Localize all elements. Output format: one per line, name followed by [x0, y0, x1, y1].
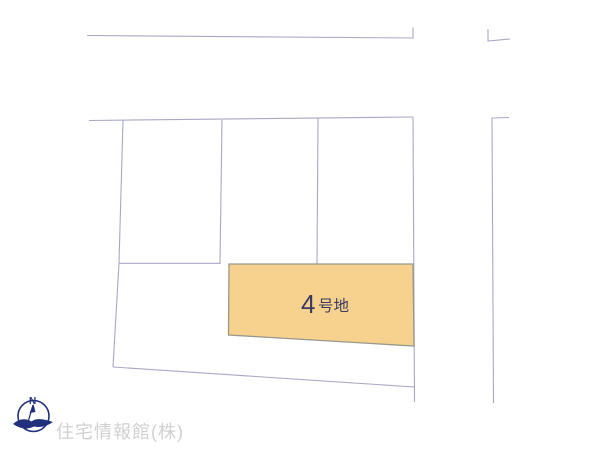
- company-watermark: 住宅情報館(株): [56, 422, 184, 442]
- compass-wing-shape: [13, 419, 53, 428]
- parcel-4-suffix: 号地: [318, 297, 349, 315]
- road-corner-northeast: [488, 29, 510, 41]
- compass-north-icon: N: [13, 396, 53, 432]
- boundary-lines: [87, 28, 510, 404]
- block-left-edge: [113, 120, 123, 367]
- parcel-divider-left: [220, 120, 222, 264]
- parcel-divider-right: [317, 119, 318, 264]
- block-right-edge: [413, 117, 415, 402]
- block-top-edge: [89, 117, 413, 121]
- road-edge-top: [87, 28, 413, 39]
- plot-map: 4 号地 N 住宅情報館(株): [0, 0, 600, 450]
- parcel-4-number: 4: [301, 289, 315, 319]
- block-bottom-edge: [113, 367, 414, 387]
- road-edge-right: [492, 118, 509, 404]
- highlighted-parcel-4: 4 号地: [229, 264, 415, 346]
